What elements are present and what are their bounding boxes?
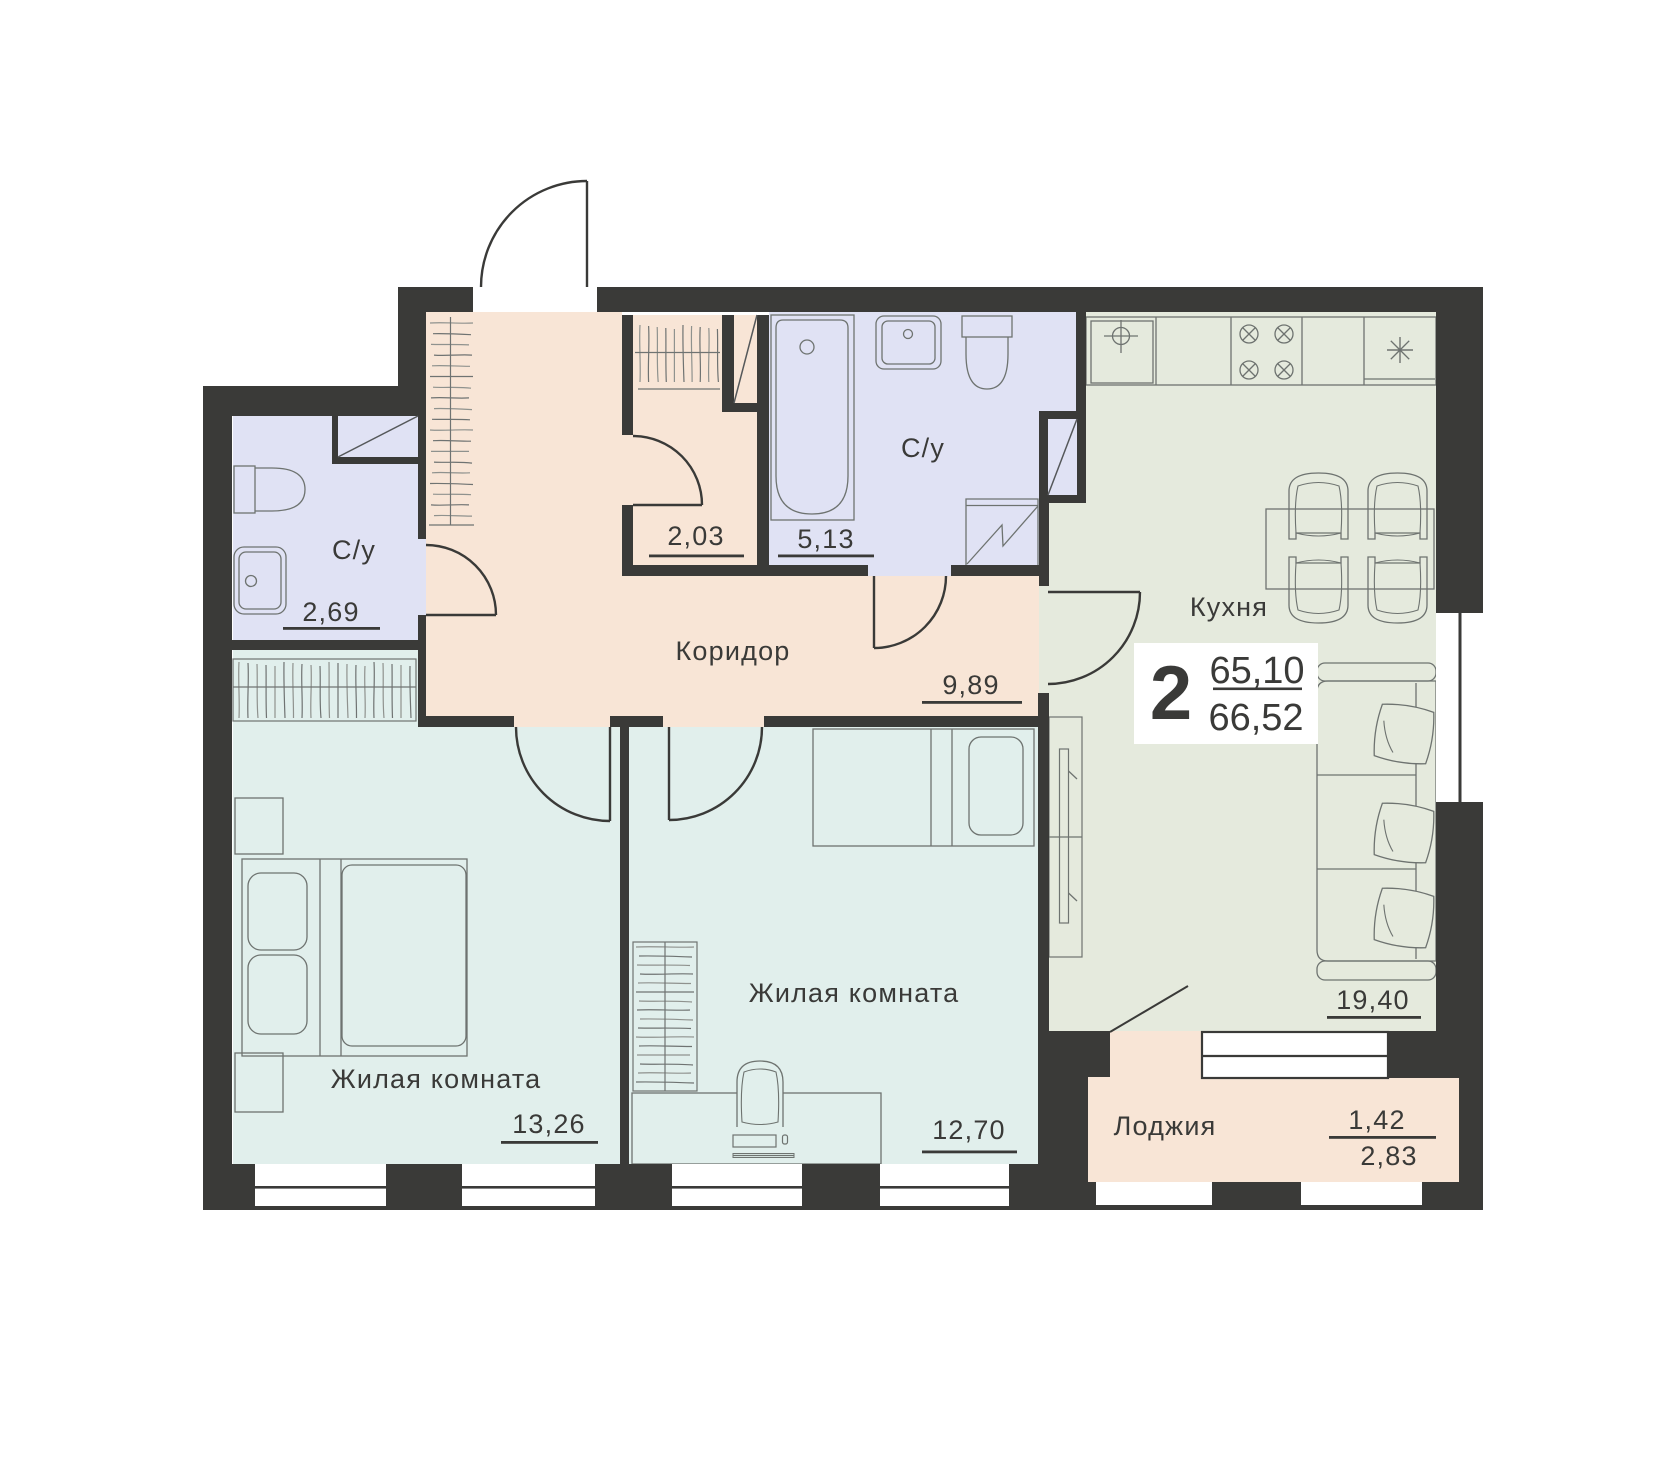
- svg-text:5,13: 5,13: [797, 524, 854, 554]
- svg-text:66,52: 66,52: [1208, 697, 1303, 739]
- svg-text:1,42: 1,42: [1348, 1105, 1405, 1135]
- svg-text:19,40: 19,40: [1336, 985, 1410, 1015]
- svg-text:65,10: 65,10: [1209, 650, 1304, 692]
- svg-text:2,03: 2,03: [667, 521, 724, 551]
- svg-text:Жилая комната: Жилая комната: [749, 978, 960, 1008]
- svg-text:13,26: 13,26: [512, 1109, 586, 1139]
- svg-text:Кухня: Кухня: [1190, 592, 1268, 622]
- svg-text:2,83: 2,83: [1360, 1141, 1417, 1171]
- svg-text:Коридор: Коридор: [675, 636, 790, 666]
- svg-text:12,70: 12,70: [932, 1115, 1006, 1145]
- svg-text:Жилая комната: Жилая комната: [331, 1064, 542, 1094]
- svg-text:2: 2: [1150, 651, 1192, 736]
- svg-text:С/у: С/у: [332, 535, 376, 565]
- svg-text:2,69: 2,69: [302, 597, 359, 627]
- svg-text:Лоджия: Лоджия: [1114, 1111, 1217, 1141]
- svg-text:9,89: 9,89: [942, 670, 999, 700]
- svg-text:С/у: С/у: [901, 433, 945, 463]
